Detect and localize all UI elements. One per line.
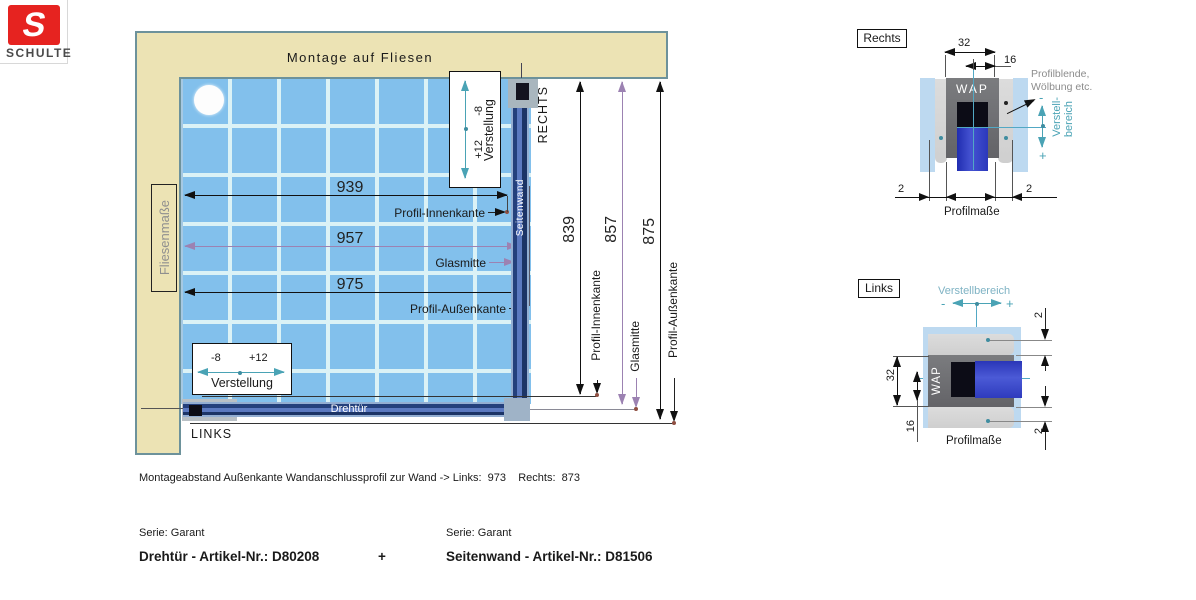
- adjustment-dot: [464, 127, 468, 131]
- pointer-glasmitte-label: Glasmitte: [400, 256, 486, 270]
- links-dim-32-label: 32: [885, 369, 897, 381]
- series-right: Serie: Garant: [446, 527, 511, 539]
- dim-875-label: 875: [641, 218, 659, 245]
- article-left: Drehtür - Artikel-Nr.: D80208: [139, 549, 319, 564]
- rechts-dim-32-label: 32: [958, 37, 970, 49]
- links-gap-bottom-arrow: [1045, 386, 1046, 405]
- ext-line: [945, 55, 946, 77]
- ref-dot-teal: [1004, 136, 1008, 140]
- series-left: Serie: Garant: [139, 527, 204, 539]
- rechts-dim-32-line: [945, 52, 995, 53]
- ext-line: [1016, 407, 1052, 408]
- pointer-aussenkante-label-vertical: Profil-Außenkante: [666, 262, 680, 358]
- rechts-gap-left-label: 2: [898, 183, 904, 195]
- arrowhead: [946, 193, 956, 201]
- rechts-adjust-minus: -: [1039, 90, 1043, 105]
- rechts-cover-right: [998, 79, 1013, 163]
- pointer-glasmitte-arrow: [489, 262, 513, 263]
- ref-dot: [595, 393, 599, 397]
- pointer-aussenkante-label: Profil-Außenkante: [368, 302, 506, 316]
- links-caption: Profilmaße: [946, 435, 1002, 447]
- ext-line: [988, 340, 1052, 341]
- pointer-arrow-down: [597, 380, 598, 392]
- tile-size-label: Fliesenmaße: [157, 200, 172, 275]
- arrowhead: [1012, 193, 1022, 201]
- wall-top-label: Montage auf Fliesen: [230, 50, 490, 65]
- links-wap-label: WAP: [931, 359, 943, 403]
- tile-size-box: Fliesenmaße: [151, 184, 177, 292]
- door-bar: Drehtür: [183, 402, 515, 417]
- adjustment-dot: [975, 302, 979, 306]
- rechts-dim-16-line: [966, 66, 995, 67]
- ext-line: [995, 66, 1011, 67]
- adjustment-label: Verstellung: [482, 84, 496, 176]
- ext-line: [1012, 140, 1013, 201]
- links-adjust-label: Verstellbereich: [938, 285, 1010, 297]
- pointer-innenkante-label: Profil-Innenkante: [360, 206, 485, 220]
- rechts-centerline-horizontal: [957, 127, 1046, 128]
- ref-dot-teal: [986, 419, 990, 423]
- sidewall-bar: Seitenwand: [511, 79, 529, 403]
- adjustment-dot: [1041, 124, 1045, 128]
- pointer-innenkante-arrow: [488, 212, 504, 213]
- ref-dot-teal: [939, 136, 943, 140]
- ext-line: [507, 196, 508, 212]
- shower-head-icon: [194, 85, 224, 115]
- adjustment-box-bottom: -8 +12 Verstellung: [192, 343, 292, 395]
- leader-line: [530, 409, 634, 410]
- leader-line: [190, 423, 673, 424]
- links-dim-16-line: [917, 372, 918, 400]
- left-side-marker: LINKS: [191, 427, 232, 441]
- schulte-logo: S SCHULTE: [0, 0, 68, 64]
- links-adjust-minus: -: [941, 296, 945, 311]
- leader-line: [141, 408, 183, 409]
- dim-857-label: 857: [603, 216, 621, 243]
- dim-957-line: [185, 246, 517, 247]
- rechts-adjust-label-line1: Verstell-: [1051, 97, 1063, 137]
- corner-connector: [504, 398, 530, 421]
- rechts-note-line1: Profilblende,: [1031, 68, 1089, 80]
- door-label: Drehtür: [183, 403, 515, 415]
- links-adjust-plus: +: [1006, 296, 1014, 311]
- dim-939-line: [185, 195, 507, 196]
- pointer-glasmitte-label-vertical: Glasmitte: [628, 321, 642, 372]
- links-gap-bottom-arrow2: [1045, 423, 1046, 450]
- links-cover-bottom: [928, 407, 1014, 428]
- links-glass: [975, 361, 1022, 398]
- ext-line: [995, 162, 996, 201]
- ext-line: [929, 140, 930, 201]
- arrowhead: [919, 193, 929, 201]
- dim-839-label: 839: [561, 216, 579, 243]
- pointer-arrow-down: [674, 378, 675, 420]
- rechts-caption: Profilmaße: [944, 206, 1000, 218]
- adjustment-label: Verstellung: [193, 376, 291, 390]
- sidewall-label: Seitenwand: [515, 179, 526, 236]
- ref-dot: [634, 407, 638, 411]
- links-gap-top-arrow: [1045, 308, 1046, 338]
- article-plus: +: [378, 549, 386, 564]
- rechts-adjust-plus: +: [1039, 148, 1047, 163]
- door-hinge-icon: [189, 405, 202, 416]
- adjustment-minus: -8: [211, 352, 221, 364]
- logo-s-icon: S: [20, 8, 49, 42]
- ref-dot: [672, 421, 676, 425]
- ref-dot: [1004, 101, 1008, 105]
- links-dim-16-label: 16: [905, 420, 917, 432]
- rechts-gap-right-label: 2: [1026, 183, 1032, 195]
- ext-line: [917, 400, 918, 442]
- arrowhead: [985, 193, 995, 201]
- adjustment-plus: +12: [249, 352, 268, 364]
- links-glass-clamp: [951, 362, 975, 397]
- article-right: Seitenwand - Artikel-Nr.: D81506: [446, 549, 653, 564]
- center-tick: [521, 63, 522, 78]
- links-gap-bottom-label: 2: [1033, 428, 1045, 434]
- wall-anchor-connector: [516, 83, 529, 100]
- logo-red-square: S: [8, 5, 60, 45]
- dim-839-line: [580, 82, 581, 394]
- ext-line: [893, 406, 929, 407]
- rechts-wall-block-left: [920, 78, 935, 172]
- pointer-arrow-down: [636, 378, 637, 406]
- mounting-note: Montageabstand Außenkante Wandanschlussp…: [139, 472, 580, 484]
- rechts-centerline-vertical: [973, 70, 974, 170]
- links-gap-top-label: 2: [1033, 312, 1045, 318]
- links-gap-top-arrow2: [1045, 357, 1046, 371]
- detail-links-title: Links: [858, 279, 900, 298]
- detail-rechts-title: Rechts: [857, 29, 907, 48]
- dim-975-line: [185, 292, 527, 293]
- leader-line: [202, 396, 596, 397]
- adjustment-dot: [238, 371, 242, 375]
- rechts-wall-block-right: [1013, 78, 1028, 172]
- rechts-adjust-label-line2: bereich: [1063, 101, 1075, 137]
- rechts-dim-16-label: 16: [1004, 54, 1016, 66]
- adjustment-box-top: -8 +12 Verstellung: [449, 71, 501, 188]
- links-dim-32-line: [897, 357, 898, 405]
- ref-dot-teal: [986, 338, 990, 342]
- right-side-marker: RECHTS: [536, 86, 550, 143]
- wall-corner-patch: [138, 73, 176, 81]
- ext-line: [529, 186, 530, 306]
- links-cover-top: [928, 334, 1014, 355]
- dim-875-line: [660, 82, 661, 419]
- pointer-innenkante-label-vertical: Profil-Innenkante: [589, 270, 603, 361]
- dim-857-line: [622, 82, 623, 404]
- logo-brand-text: SCHULTE: [6, 46, 62, 60]
